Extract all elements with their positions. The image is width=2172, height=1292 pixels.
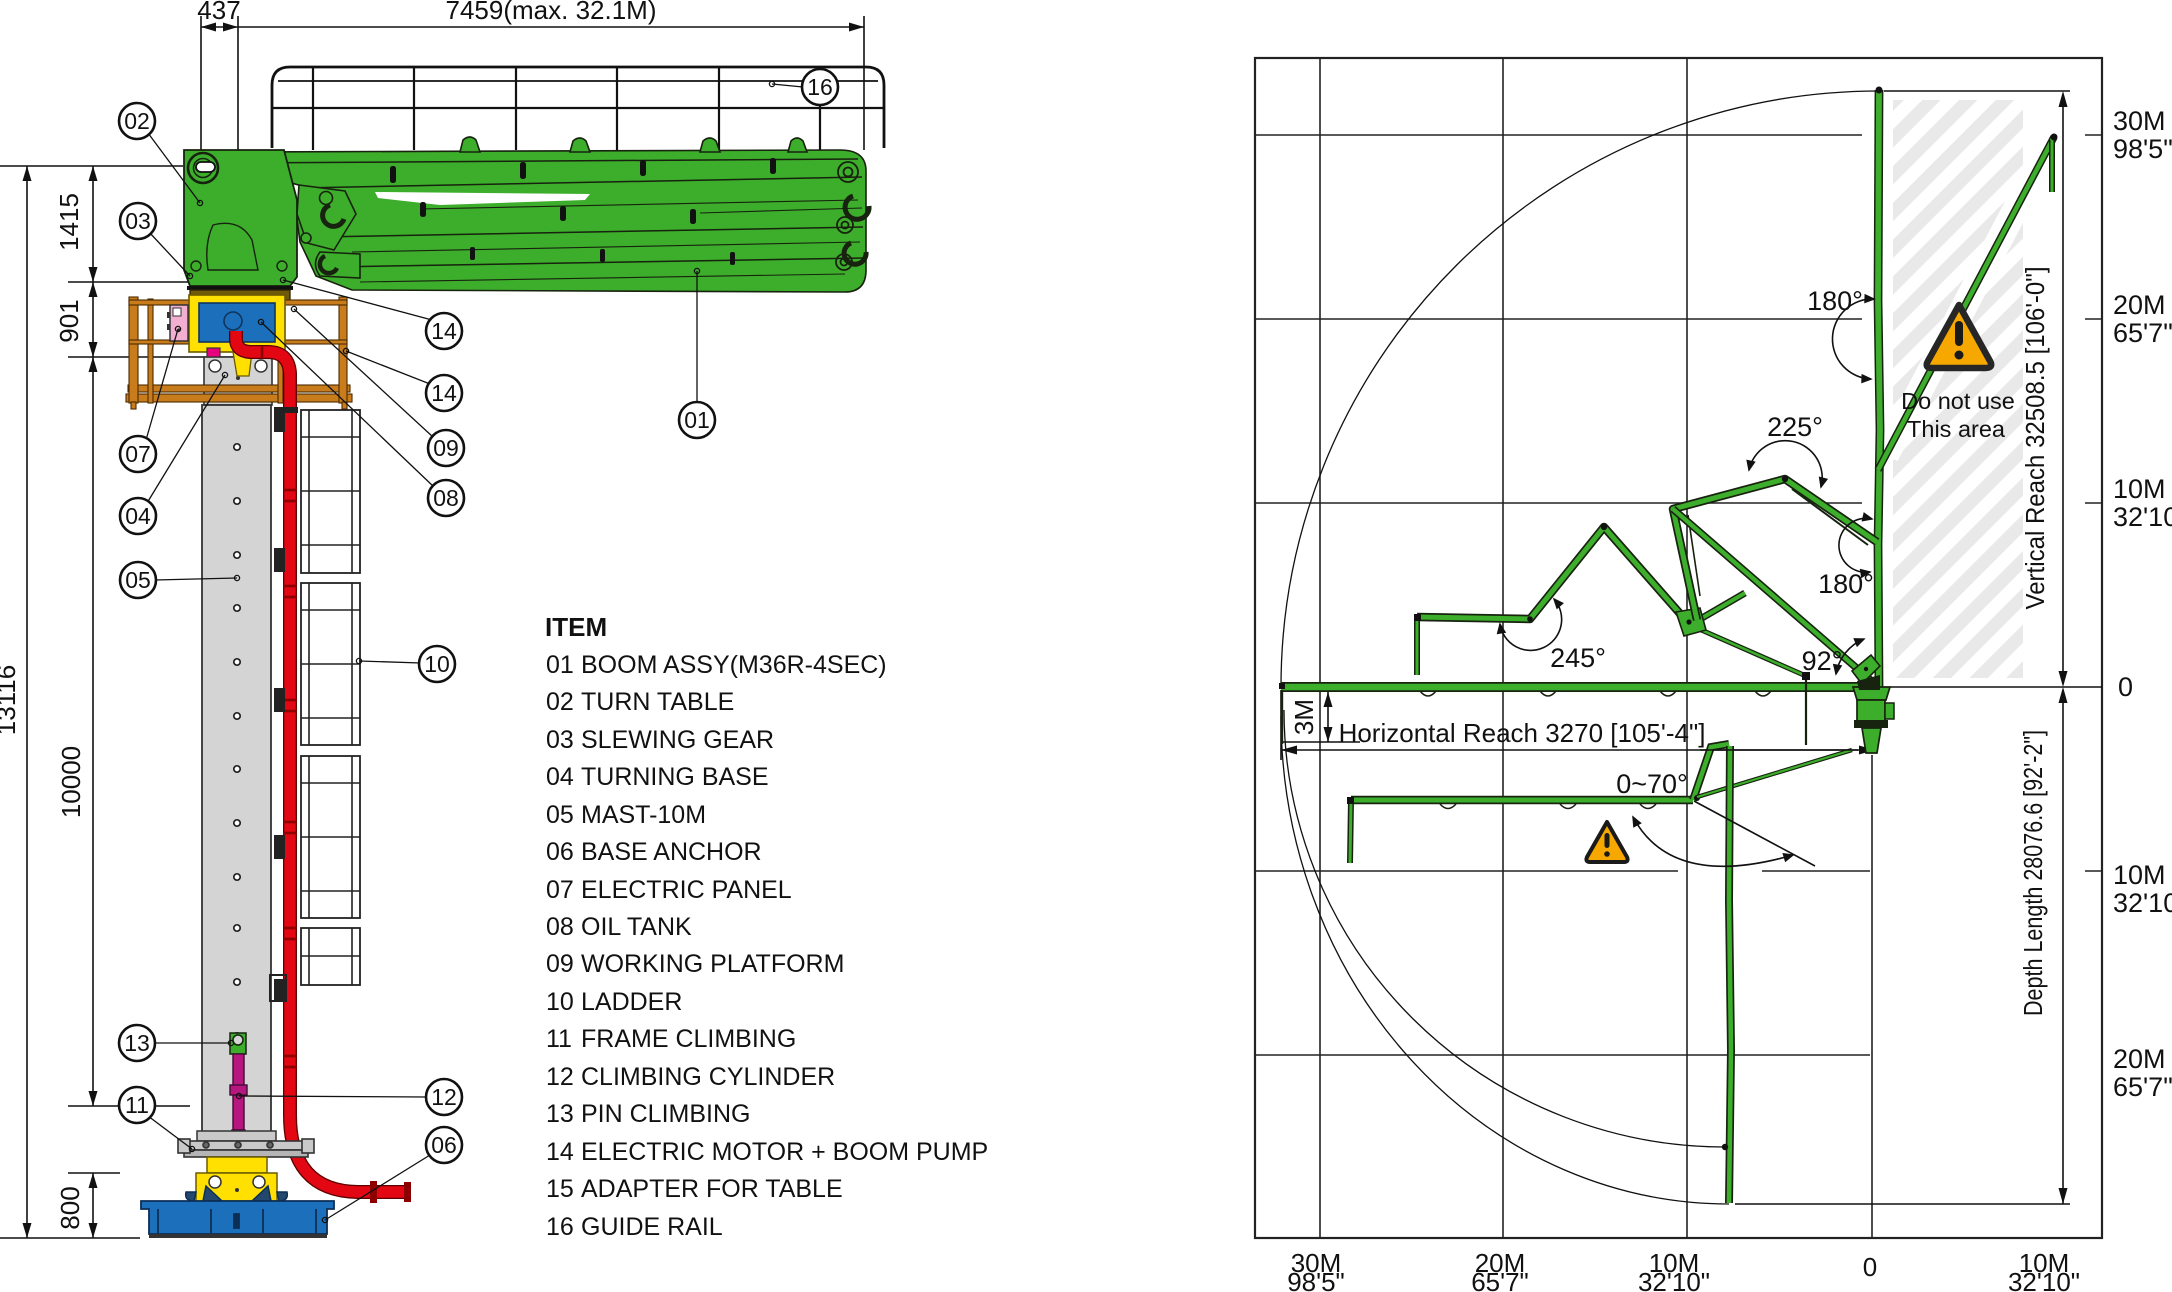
svg-text:16: 16 <box>546 1213 574 1241</box>
svg-text:30M: 30M <box>2113 106 2166 136</box>
svg-text:04: 04 <box>125 503 151 529</box>
svg-text:32'10": 32'10" <box>2113 888 2172 918</box>
svg-text:32'10": 32'10" <box>1638 1267 1710 1292</box>
svg-text:LADDER: LADDER <box>581 988 682 1016</box>
svg-text:65'7": 65'7" <box>2113 318 2172 348</box>
svg-text:437: 437 <box>197 0 240 25</box>
svg-text:11: 11 <box>546 1025 572 1053</box>
svg-text:14: 14 <box>546 1138 574 1166</box>
svg-text:FRAME CLIMBING: FRAME CLIMBING <box>581 1025 796 1053</box>
svg-text:901: 901 <box>54 299 84 342</box>
svg-text:ELECTRIC MOTOR + BOOM PUMP: ELECTRIC MOTOR + BOOM PUMP <box>581 1138 988 1166</box>
svg-text:07: 07 <box>546 876 574 904</box>
svg-text:ELECTRIC PANEL: ELECTRIC PANEL <box>581 876 792 904</box>
svg-text:0: 0 <box>2118 672 2133 702</box>
svg-text:06: 06 <box>431 1132 457 1158</box>
svg-text:BOOM ASSY(M36R-4SEC): BOOM ASSY(M36R-4SEC) <box>581 651 887 679</box>
svg-text:7459(max. 32.1M): 7459(max. 32.1M) <box>446 0 657 25</box>
svg-text:10M: 10M <box>2113 860 2166 890</box>
svg-text:SLEWING GEAR: SLEWING GEAR <box>581 726 774 754</box>
svg-text:02: 02 <box>124 108 150 134</box>
svg-text:03: 03 <box>125 208 151 234</box>
svg-text:Horizontal Reach 3270 [105'-4": Horizontal Reach 3270 [105'-4"] <box>1339 718 1706 748</box>
svg-text:WORKING PLATFORM: WORKING PLATFORM <box>581 950 844 978</box>
svg-text:ITEM: ITEM <box>545 612 607 642</box>
svg-text:245°: 245° <box>1550 643 1606 673</box>
svg-text:13: 13 <box>124 1030 150 1056</box>
svg-text:65'7": 65'7" <box>1471 1267 1529 1292</box>
svg-text:180°: 180° <box>1818 569 1874 599</box>
svg-text:32'10": 32'10" <box>2113 502 2172 532</box>
svg-text:180°: 180° <box>1807 286 1863 316</box>
svg-text:3M: 3M <box>1289 699 1319 735</box>
svg-text:20M: 20M <box>2113 1044 2166 1074</box>
svg-text:14: 14 <box>431 380 457 406</box>
svg-text:GUIDE RAIL: GUIDE RAIL <box>581 1213 723 1241</box>
svg-text:16: 16 <box>807 74 833 100</box>
svg-text:225°: 225° <box>1767 412 1823 442</box>
svg-text:09: 09 <box>546 950 574 978</box>
svg-text:13116: 13116 <box>0 665 21 735</box>
svg-text:1415: 1415 <box>54 193 84 251</box>
svg-text:PIN CLIMBING: PIN CLIMBING <box>581 1100 750 1128</box>
svg-text:10: 10 <box>424 651 450 677</box>
svg-text:BASE ANCHOR: BASE ANCHOR <box>581 838 762 866</box>
svg-text:09: 09 <box>433 435 459 461</box>
svg-text:05: 05 <box>125 567 151 593</box>
svg-text:11: 11 <box>125 1092 149 1118</box>
svg-text:Depth Length 28076.6 [92'-2"]: Depth Length 28076.6 [92'-2"] <box>2018 730 2048 1016</box>
svg-text:800: 800 <box>55 1186 85 1229</box>
svg-text:15: 15 <box>546 1175 574 1203</box>
svg-text:98'5": 98'5" <box>2113 134 2172 164</box>
svg-text:02: 02 <box>546 688 574 716</box>
svg-text:10000: 10000 <box>56 746 86 818</box>
svg-text:12: 12 <box>431 1084 457 1110</box>
svg-text:0: 0 <box>1863 1252 1877 1282</box>
svg-text:13: 13 <box>546 1100 574 1128</box>
svg-text:This area: This area <box>1907 416 2006 442</box>
svg-text:MAST-10M: MAST-10M <box>581 801 706 829</box>
svg-text:Do not use: Do not use <box>1901 388 2015 414</box>
svg-text:01: 01 <box>546 651 574 679</box>
svg-text:32'10": 32'10" <box>2008 1267 2080 1292</box>
svg-text:08: 08 <box>433 485 459 511</box>
svg-text:65'7": 65'7" <box>2113 1072 2172 1102</box>
svg-text:TURNING BASE: TURNING BASE <box>581 763 769 791</box>
svg-text:ADAPTER FOR TABLE: ADAPTER FOR TABLE <box>581 1175 843 1203</box>
svg-text:06: 06 <box>546 838 574 866</box>
svg-text:92°: 92° <box>1802 646 1843 676</box>
svg-text:OIL TANK: OIL TANK <box>581 913 692 941</box>
svg-text:04: 04 <box>546 763 574 791</box>
svg-text:03: 03 <box>546 726 574 754</box>
svg-text:10M: 10M <box>2113 474 2166 504</box>
svg-text:98'5": 98'5" <box>1287 1267 1345 1292</box>
svg-text:14: 14 <box>431 318 457 344</box>
svg-text:12: 12 <box>546 1063 574 1091</box>
svg-text:Vertical Reach 32508.5 [106'-0: Vertical Reach 32508.5 [106'-0"] <box>2020 267 2050 610</box>
svg-text:TURN TABLE: TURN TABLE <box>581 688 734 716</box>
svg-text:07: 07 <box>125 441 151 467</box>
svg-text:CLIMBING CYLINDER: CLIMBING CYLINDER <box>581 1063 835 1091</box>
svg-text:0~70°: 0~70° <box>1616 769 1688 799</box>
svg-text:08: 08 <box>546 913 574 941</box>
svg-text:10: 10 <box>546 988 574 1016</box>
svg-text:01: 01 <box>684 407 710 433</box>
svg-text:05: 05 <box>546 801 574 829</box>
svg-text:20M: 20M <box>2113 290 2166 320</box>
